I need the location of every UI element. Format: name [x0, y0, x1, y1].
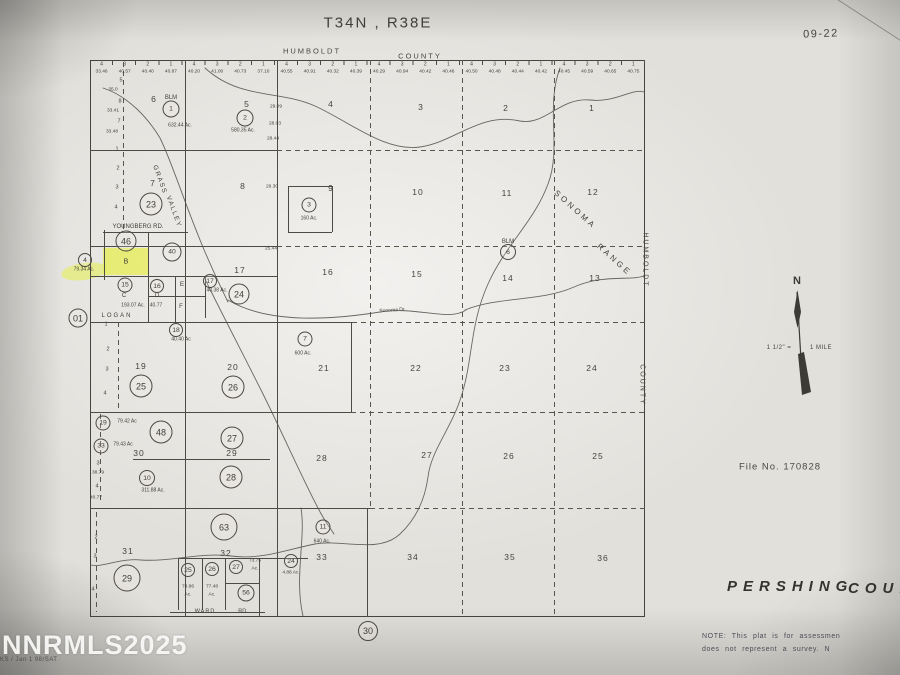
aliquot-tick-label: 4 [100, 62, 103, 67]
aliquot-tick-label: 4 [193, 62, 196, 67]
grid-line [148, 232, 149, 322]
lot-acreage: 38.79 [92, 472, 104, 477]
aliquot-acreage: 40.42 [419, 70, 431, 75]
aliquot-acreage: 37.10 [257, 70, 269, 75]
parcel-number-circle: 27 [221, 427, 244, 450]
county-label-right: HUMBOLDT [642, 232, 649, 287]
grid-line [554, 60, 555, 617]
aliquot-tick-label: 2 [516, 62, 519, 67]
acreage-label: 79.42 Ac [117, 420, 136, 425]
road-label-ward: WARD [195, 609, 216, 615]
north-letter: N [793, 275, 801, 287]
disclaimer-note: NOTE: This plat is for assessmen [702, 633, 840, 640]
section-number: 31 [122, 547, 133, 556]
section-number: 35 [504, 553, 515, 562]
aliquot-acreage: 40.48 [489, 70, 501, 75]
aliquot-acreage: 40.46 [442, 70, 454, 75]
parcel-number-circle: 6 [500, 244, 516, 260]
aliquot-tick-label: 4 [470, 62, 473, 67]
parcel-number-circle: 28 [220, 466, 243, 489]
lot-number: 1 [104, 322, 107, 328]
county-label-top: COUNTY [398, 52, 442, 61]
map-sheet-ref-circle: 30 [358, 621, 378, 641]
acreage-label: 40.77 [150, 304, 163, 309]
grid-line [90, 508, 370, 509]
aliquot-tick-label: 2 [609, 62, 612, 67]
grid-line [90, 276, 277, 277]
parcel-number-circle: 46 [116, 231, 137, 252]
pershing-county-label: PERSHING [727, 578, 853, 595]
aliquot-tick-label: 3 [586, 62, 589, 67]
lot-acreage: 33.41 [107, 110, 119, 115]
parcel-number-circle: 18 [169, 323, 183, 337]
lot-number: 3 [105, 367, 108, 373]
watermark-subtext: KS / Jan 1 98/SAT [0, 657, 57, 663]
grid-line [277, 60, 278, 617]
aliquot-tick-label: 4 [563, 62, 566, 67]
grid-line [367, 508, 368, 617]
parcel-number-circle: 2 [237, 110, 254, 127]
parcel-number-circle: 25 [130, 375, 153, 398]
road-label-youngberg: YOUNGBERG RD. [112, 224, 163, 230]
parcel-letter: F [179, 304, 183, 310]
section-number: 19 [135, 362, 146, 371]
parcel-number-circle: 10 [139, 470, 155, 486]
lot-number: 2 [106, 347, 109, 353]
road-label-logan: LOGAN [101, 313, 132, 319]
lot-acreage: 40.77 [90, 497, 102, 502]
grid-line [277, 150, 645, 151]
parcel-number-circle: 25 [181, 563, 195, 577]
disclaimer-note: does not represent a survey. N [702, 646, 830, 653]
section-number: 8 [240, 182, 246, 191]
acreage-label: 79.43 Ac [113, 443, 132, 448]
blm-label: BLM [165, 95, 177, 101]
aliquot-tick-label: 3 [308, 62, 311, 67]
grid-line [103, 232, 188, 233]
parcel-number-circle: 16 [150, 279, 164, 293]
parcel-number-circle: 48 [150, 421, 173, 444]
scan-crease [832, 0, 900, 59]
parcel-number-circle: 33 [94, 439, 109, 454]
lot-number: 3 [115, 185, 118, 191]
lot-number: 4 [114, 205, 117, 211]
aliquot-acreage: 40.75 [627, 70, 639, 75]
page-code: 09-22 [803, 27, 839, 40]
aliquot-tick-label: 3 [216, 62, 219, 67]
grid-line [133, 459, 270, 460]
aliquot-tick-label: 3 [123, 62, 126, 67]
aliquot-acreage: 40.39 [350, 70, 362, 75]
acreage-label: 74.86 [182, 586, 194, 591]
grid-line [90, 322, 352, 323]
section-number: 20 [227, 363, 238, 372]
aliquot-acreage: 40.94 [396, 70, 408, 75]
acreage-label: 193.07 Ac. [121, 304, 145, 309]
county-label-right: COUNTY [639, 364, 646, 406]
aliquot-tick-label: 2 [239, 62, 242, 67]
grid-line [370, 60, 371, 508]
aliquot-tick-label: 1 [632, 62, 635, 67]
parcel-number-circle: 27 [229, 560, 243, 574]
parcel-number-circle: 23 [140, 193, 163, 216]
section-number: 16 [322, 268, 333, 277]
section-number: 23 [499, 364, 510, 373]
section-number: 2 [503, 104, 509, 113]
township-title: T34N , R38E [324, 15, 433, 32]
grid-line [332, 186, 333, 232]
section-number: 33 [316, 553, 327, 562]
aliquot-acreage: 40.50 [466, 70, 478, 75]
parcel-letter: B [124, 259, 129, 266]
aliquot-acreage: 40.73 [234, 70, 246, 75]
aliquot-acreage: 40.59 [581, 70, 593, 75]
lot-acreage: 28.44 [267, 138, 279, 143]
grid-line [370, 508, 645, 509]
lot-number: 2 [94, 535, 97, 541]
aliquot-acreage: 40.29 [373, 70, 385, 75]
acreage-label: 632.44 Ac. [168, 124, 192, 129]
parcel-number-circle: 4 [78, 253, 92, 267]
acreage-label: 73.75 [249, 560, 261, 565]
aliquot-acreage: 41.00 [211, 70, 223, 75]
scale-label: 1 MILE [810, 345, 832, 351]
scale-label: 1 1/2" = [767, 345, 792, 351]
grid-line [277, 246, 645, 247]
aliquot-acreage: 40.65 [604, 70, 616, 75]
parcel-number-circle: 56 [238, 585, 255, 602]
section-number: 11 [502, 189, 513, 198]
north-arrow: N [755, 266, 845, 401]
lot-number: 7 [117, 119, 120, 125]
aliquot-tick-label: 2 [331, 62, 334, 67]
aliquot-tick-label: 4 [285, 62, 288, 67]
lot-number: 3 [93, 554, 96, 560]
pershing-county-label: COUN [848, 580, 900, 597]
grid-line [462, 60, 463, 617]
aliquot-acreage: 40.45 [558, 70, 570, 75]
aliquot-acreage: 40.57 [119, 70, 131, 75]
section-number: 4 [328, 100, 334, 109]
lot-acreage: 28.03 [269, 123, 281, 128]
acreage-label: 640 Ac. [314, 540, 331, 545]
section-number: 36 [597, 554, 608, 563]
acreage-label: 311.88 Ac. [141, 489, 164, 494]
grid-line [288, 186, 332, 187]
section-number: 24 [586, 364, 597, 373]
lot-acreage: 33.48 [106, 131, 118, 136]
parcel-number-circle: 19 [96, 416, 111, 431]
grid-line [225, 558, 226, 610]
section-number: 3 [418, 103, 424, 112]
aliquot-acreage: 40.40 [142, 70, 154, 75]
acreage-label: 580.35 Ac. [231, 129, 255, 134]
grid-line [351, 322, 352, 412]
aliquot-acreage: 40.44 [512, 70, 524, 75]
acreage-label: 77.48 [206, 586, 218, 591]
parcel-number-circle: 17 [203, 274, 217, 288]
lot-number: 4 [103, 391, 106, 397]
parcel-letter: D [155, 293, 159, 299]
acreage-label: 79.34 Ac. [74, 268, 95, 273]
aliquot-tick-label: 1 [262, 62, 265, 67]
acreage-label: 4.88 Ac. [282, 572, 299, 577]
parcel-number-circle: 26 [222, 376, 245, 399]
aliquot-tick-label: 3 [401, 62, 404, 67]
aliquot-tick-label: 1 [170, 62, 173, 67]
grid-line [288, 186, 289, 232]
acreage-label: 40.40 Ac [171, 338, 190, 343]
lot-number: 5 [119, 78, 122, 84]
lot-number: 8 [118, 99, 121, 105]
county-label-top: HUMBOLDT [283, 47, 341, 56]
section-number: 26 [503, 452, 514, 461]
aliquot-acreage: 33.46 [96, 70, 108, 75]
acreage-label: 600 Ac. [295, 352, 312, 357]
aliquot-tick-label: 1 [355, 62, 358, 67]
section-number: 1 [589, 104, 595, 113]
aliquot-tick-label: 3 [493, 62, 496, 67]
aliquot-tick-label: 2 [424, 62, 427, 67]
grid-line [118, 322, 119, 410]
lot-acreage: 29.09 [270, 106, 282, 111]
section-number: 32 [220, 549, 231, 558]
lot-acreage: 25.44 [265, 248, 277, 253]
aliquot-tick-label: 4 [378, 62, 381, 67]
parcel-number-circle: 15 [118, 278, 133, 293]
parcel-number-circle: 63 [211, 514, 238, 541]
parcel-number-circle: 1 [163, 101, 180, 118]
parcel-letter: E [180, 282, 184, 289]
section-number: 15 [411, 270, 422, 279]
aliquot-tick-label: 2 [146, 62, 149, 67]
parcel-number-circle: 7 [298, 332, 313, 347]
section-number: 29 [226, 449, 237, 458]
grid-line [104, 230, 105, 280]
file-number: File No. 170828 [739, 462, 821, 473]
section-number: 28 [316, 454, 327, 463]
section-number: 27 [421, 451, 432, 460]
section-number: 12 [587, 188, 598, 197]
aliquot-acreage: 40.91 [304, 70, 316, 75]
aliquot-acreage: 40.20 [188, 70, 200, 75]
aliquot-acreage: 40.87 [165, 70, 177, 75]
road-label-ward: RD. [238, 609, 247, 615]
aliquot-tick-label: 1 [540, 62, 543, 67]
section-number: 10 [412, 188, 423, 197]
grid-line [90, 412, 351, 413]
acreage-label: 40.38 Ac. [207, 289, 228, 294]
grid-line [352, 322, 645, 323]
acreage-label: Ac. [209, 594, 216, 599]
grid-line [123, 62, 124, 230]
parcel-number-circle: 26 [205, 562, 219, 576]
section-number: 13 [589, 274, 600, 283]
lot-number: 3 [96, 461, 99, 467]
parcel-number-circle: 24 [229, 284, 250, 305]
section-number: 34 [407, 553, 418, 562]
parcel-number-circle: 24 [284, 554, 298, 568]
section-number: 22 [410, 364, 421, 373]
grid-line [202, 558, 203, 610]
grid-line [259, 558, 260, 617]
acreage-label: Ac. [185, 594, 192, 599]
grid-line [225, 583, 259, 584]
aliquot-tick-label: 1 [447, 62, 450, 67]
acreage-label: 160 Ac. [301, 217, 318, 222]
grid-line [351, 412, 645, 413]
section-number: 6 [151, 95, 157, 104]
aliquot-acreage: 40.32 [327, 70, 339, 75]
section-number: 30 [133, 449, 144, 458]
parcel-number-circle: 3 [302, 198, 317, 213]
section-number: 5 [244, 100, 250, 109]
parcel-number-circle: 29 [114, 565, 141, 592]
lot-number: 1 [115, 147, 118, 153]
section-number: 17 [234, 266, 245, 275]
section-number: 21 [318, 364, 329, 373]
acreage-label: Ac. [252, 568, 259, 573]
grid-line [288, 232, 332, 233]
map-sheet-ref-circle: 01 [69, 309, 88, 328]
aliquot-acreage: 40.55 [281, 70, 293, 75]
grid-line [96, 512, 97, 612]
parcel-number-circle: 11 [316, 520, 331, 535]
lot-number: 4 [91, 587, 94, 593]
section-number: 9 [328, 184, 334, 193]
section-number: 25 [592, 452, 603, 461]
parcel-letter: C [122, 293, 126, 299]
aliquot-acreage: 40.42 [535, 70, 547, 75]
lot-acreage: 29.30 [266, 186, 278, 191]
plat-map-page: 6543217891011121716151413192021222324302… [0, 0, 900, 675]
parcel-number-circle: 40 [163, 243, 182, 262]
section-number: 14 [502, 274, 513, 283]
lot-number: 4 [95, 484, 98, 490]
blm-label: BLM [502, 239, 514, 245]
grid-line [178, 558, 179, 610]
lot-acreage: 35.0 [108, 89, 117, 94]
lot-number: 2 [116, 166, 119, 172]
grid-line [175, 276, 176, 322]
